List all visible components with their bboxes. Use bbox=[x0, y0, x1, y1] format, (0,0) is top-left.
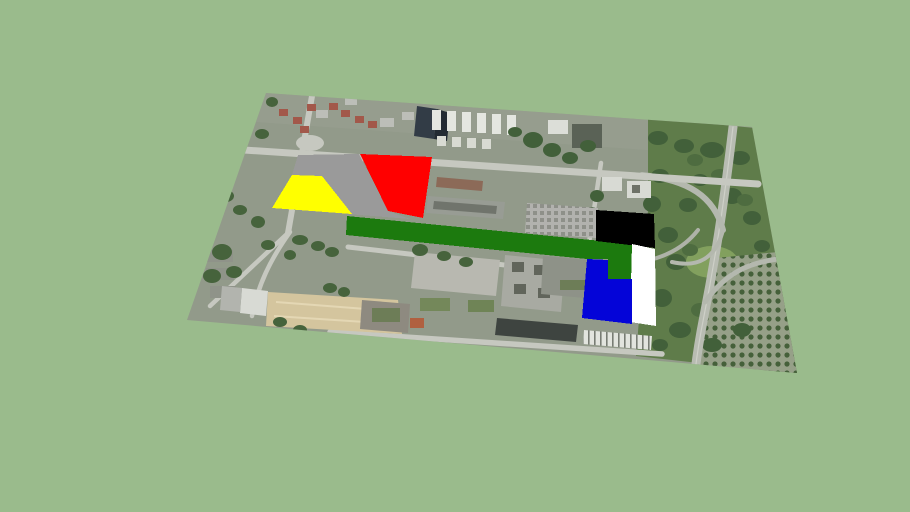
hall-roof bbox=[525, 203, 598, 238]
model-viewport[interactable] bbox=[0, 0, 910, 512]
warehouse-roof bbox=[240, 288, 268, 316]
overlay-parcel-white[interactable] bbox=[630, 244, 656, 326]
